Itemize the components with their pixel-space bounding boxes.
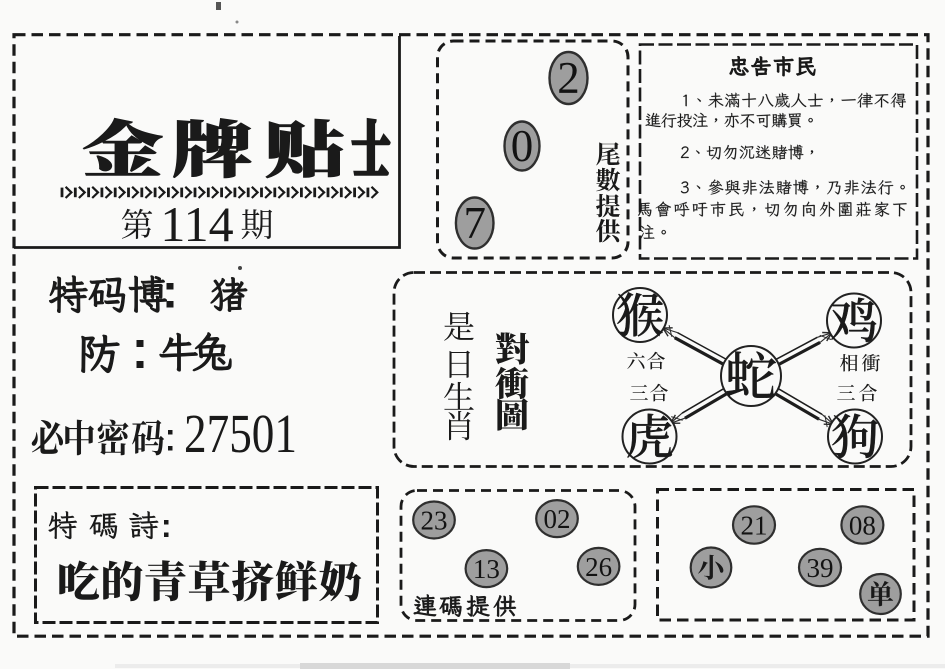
svg-text:7: 7 (463, 198, 486, 248)
svg-text:0: 0 (511, 121, 534, 171)
svg-text:23: 23 (421, 506, 448, 536)
svg-text:26: 26 (585, 552, 612, 582)
svg-text:21: 21 (741, 511, 768, 541)
svg-text:39: 39 (807, 553, 834, 583)
svg-text:114: 114 (160, 196, 233, 252)
svg-text:08: 08 (849, 511, 876, 541)
svg-text:27501: 27501 (184, 403, 297, 464)
svg-text:2: 2 (557, 53, 580, 103)
svg-text:13: 13 (473, 554, 500, 584)
svg-text:02: 02 (544, 504, 571, 534)
